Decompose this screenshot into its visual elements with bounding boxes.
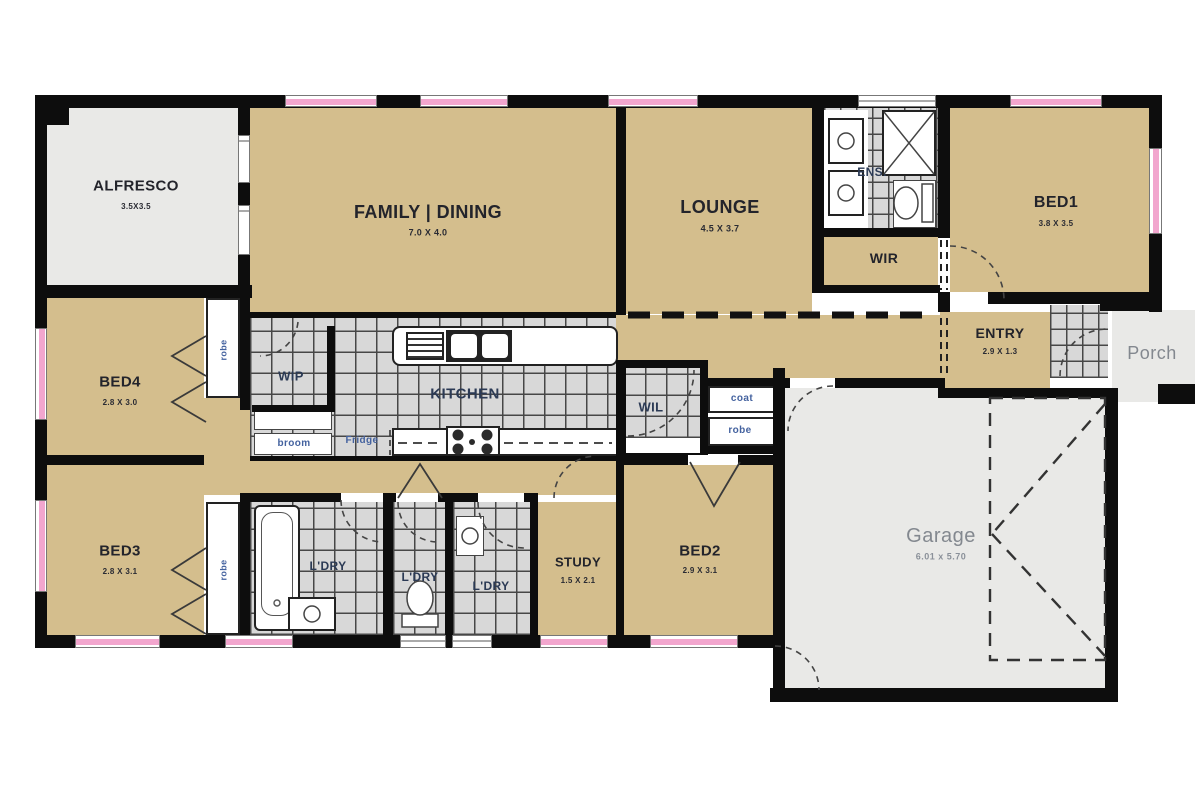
cooktop [446, 426, 500, 456]
dim-bed3: 2.8 X 3.1 [103, 568, 138, 576]
wall [700, 446, 785, 454]
wall [616, 360, 626, 460]
wall [616, 108, 626, 315]
wall [773, 368, 785, 690]
ens-basin-1 [828, 118, 864, 164]
sink-bowl-2 [482, 334, 508, 358]
wall [1105, 388, 1118, 690]
wall [938, 388, 1108, 398]
label-family-dining: FAMILY | DINING [354, 203, 502, 221]
label-robe-hall: robe [728, 426, 751, 436]
wall [250, 312, 616, 318]
window-bed4 [35, 328, 47, 420]
label-bed2: BED2 [679, 544, 721, 559]
dim-lounge: 4.5 X 3.7 [701, 225, 740, 234]
window-bed3 [35, 500, 47, 592]
label-wil: WIL [638, 401, 663, 414]
window-bed1-side [1149, 148, 1162, 234]
label-entry: ENTRY [976, 326, 1025, 340]
label-coat: coat [731, 394, 753, 404]
door-ldry2-ext [400, 635, 446, 648]
ens-toilet-box [893, 180, 936, 228]
wall [812, 108, 824, 293]
label-bed3: BED3 [99, 544, 141, 559]
window-study-btm [540, 635, 608, 648]
wall [445, 495, 453, 636]
dim-bed2: 2.9 X 3.1 [683, 567, 718, 575]
label-robe-bed4: robe [220, 339, 229, 360]
bath-vanity [288, 597, 336, 631]
entry-step-tiles [1050, 305, 1108, 378]
wall [700, 360, 708, 460]
opening-wir [941, 240, 947, 290]
wall [35, 455, 204, 465]
label-ldry1: L'DRY [309, 560, 346, 572]
kitchen-bench [392, 428, 618, 456]
dim-bed4: 2.8 X 3.0 [103, 399, 138, 407]
label-bed1: BED1 [1034, 195, 1078, 211]
wall [770, 688, 1118, 702]
dim-family-dining: 7.0 X 4.0 [409, 229, 448, 238]
label-ldry2: L'DRY [401, 571, 438, 583]
wall [616, 455, 624, 636]
pantry-shelf [254, 410, 332, 430]
label-alfresco: ALFRESCO [93, 179, 179, 194]
label-robe-bed3: robe [220, 559, 229, 580]
window-bath-btm [225, 635, 293, 648]
wall [812, 228, 950, 237]
room-ldry2 [393, 502, 445, 635]
window-bed1 [1010, 95, 1102, 107]
label-ens: ENS. [857, 166, 887, 178]
window-ens [858, 95, 936, 107]
window-bed3-btm [75, 635, 160, 648]
wall [1100, 298, 1162, 311]
floor-plan: ALFRESCO 3.5X3.5 FAMILY | DINING 7.0 X 4… [0, 0, 1200, 800]
window-family-2 [420, 95, 508, 107]
wall [250, 456, 616, 461]
sink-bowl-1 [451, 334, 477, 358]
wall [252, 405, 335, 412]
label-wip: WIP [278, 370, 304, 383]
dim-entry: 2.9 X 1.3 [983, 348, 1018, 356]
wall [818, 285, 940, 293]
bed2-door-gap [688, 455, 738, 465]
label-garage: Garage [906, 526, 976, 546]
wall [938, 292, 950, 312]
wall [938, 108, 950, 238]
wall [530, 495, 538, 636]
ens-shower [882, 110, 936, 176]
wall [35, 285, 252, 298]
dim-bed1: 3.8 X 3.5 [1039, 220, 1074, 228]
wall [240, 495, 250, 636]
label-broom: broom [277, 439, 310, 449]
sink-drainer [406, 332, 444, 360]
dim-alfresco: 3.5X3.5 [121, 203, 151, 211]
label-porch: Porch [1127, 344, 1177, 362]
ldry2-door-gap [396, 493, 438, 502]
ldry3-door-gap [478, 493, 524, 502]
window-family-1 [285, 95, 377, 107]
label-fridge: Fridge [346, 436, 379, 446]
label-kitchen: KITCHEN [430, 387, 499, 402]
label-lounge: LOUNGE [680, 198, 759, 216]
wall [383, 495, 393, 636]
room-alfresco [47, 107, 238, 287]
label-ldry3: L'DRY [472, 580, 509, 592]
door-ldry3-ext [452, 635, 492, 648]
wall [700, 378, 785, 386]
wall [240, 295, 250, 410]
label-bed4: BED4 [99, 375, 141, 390]
bath-door-gap [341, 493, 383, 502]
wir-lower-space [812, 293, 950, 312]
label-wir: WIR [870, 251, 898, 265]
alfresco-door-glass [238, 135, 250, 183]
wall [327, 326, 335, 410]
porch-pier [1158, 384, 1195, 404]
window-lounge [608, 95, 698, 107]
dim-garage: 6.01 x 5.70 [916, 553, 967, 562]
window-bed2-btm [650, 635, 738, 648]
label-study: STUDY [555, 556, 601, 569]
alfresco-door-glass [238, 205, 250, 255]
garage-door-gap [790, 378, 835, 388]
ldry3-basin [456, 516, 484, 556]
wall [616, 360, 708, 368]
wall [35, 95, 1162, 108]
dim-study: 1.5 X 2.1 [561, 577, 596, 585]
